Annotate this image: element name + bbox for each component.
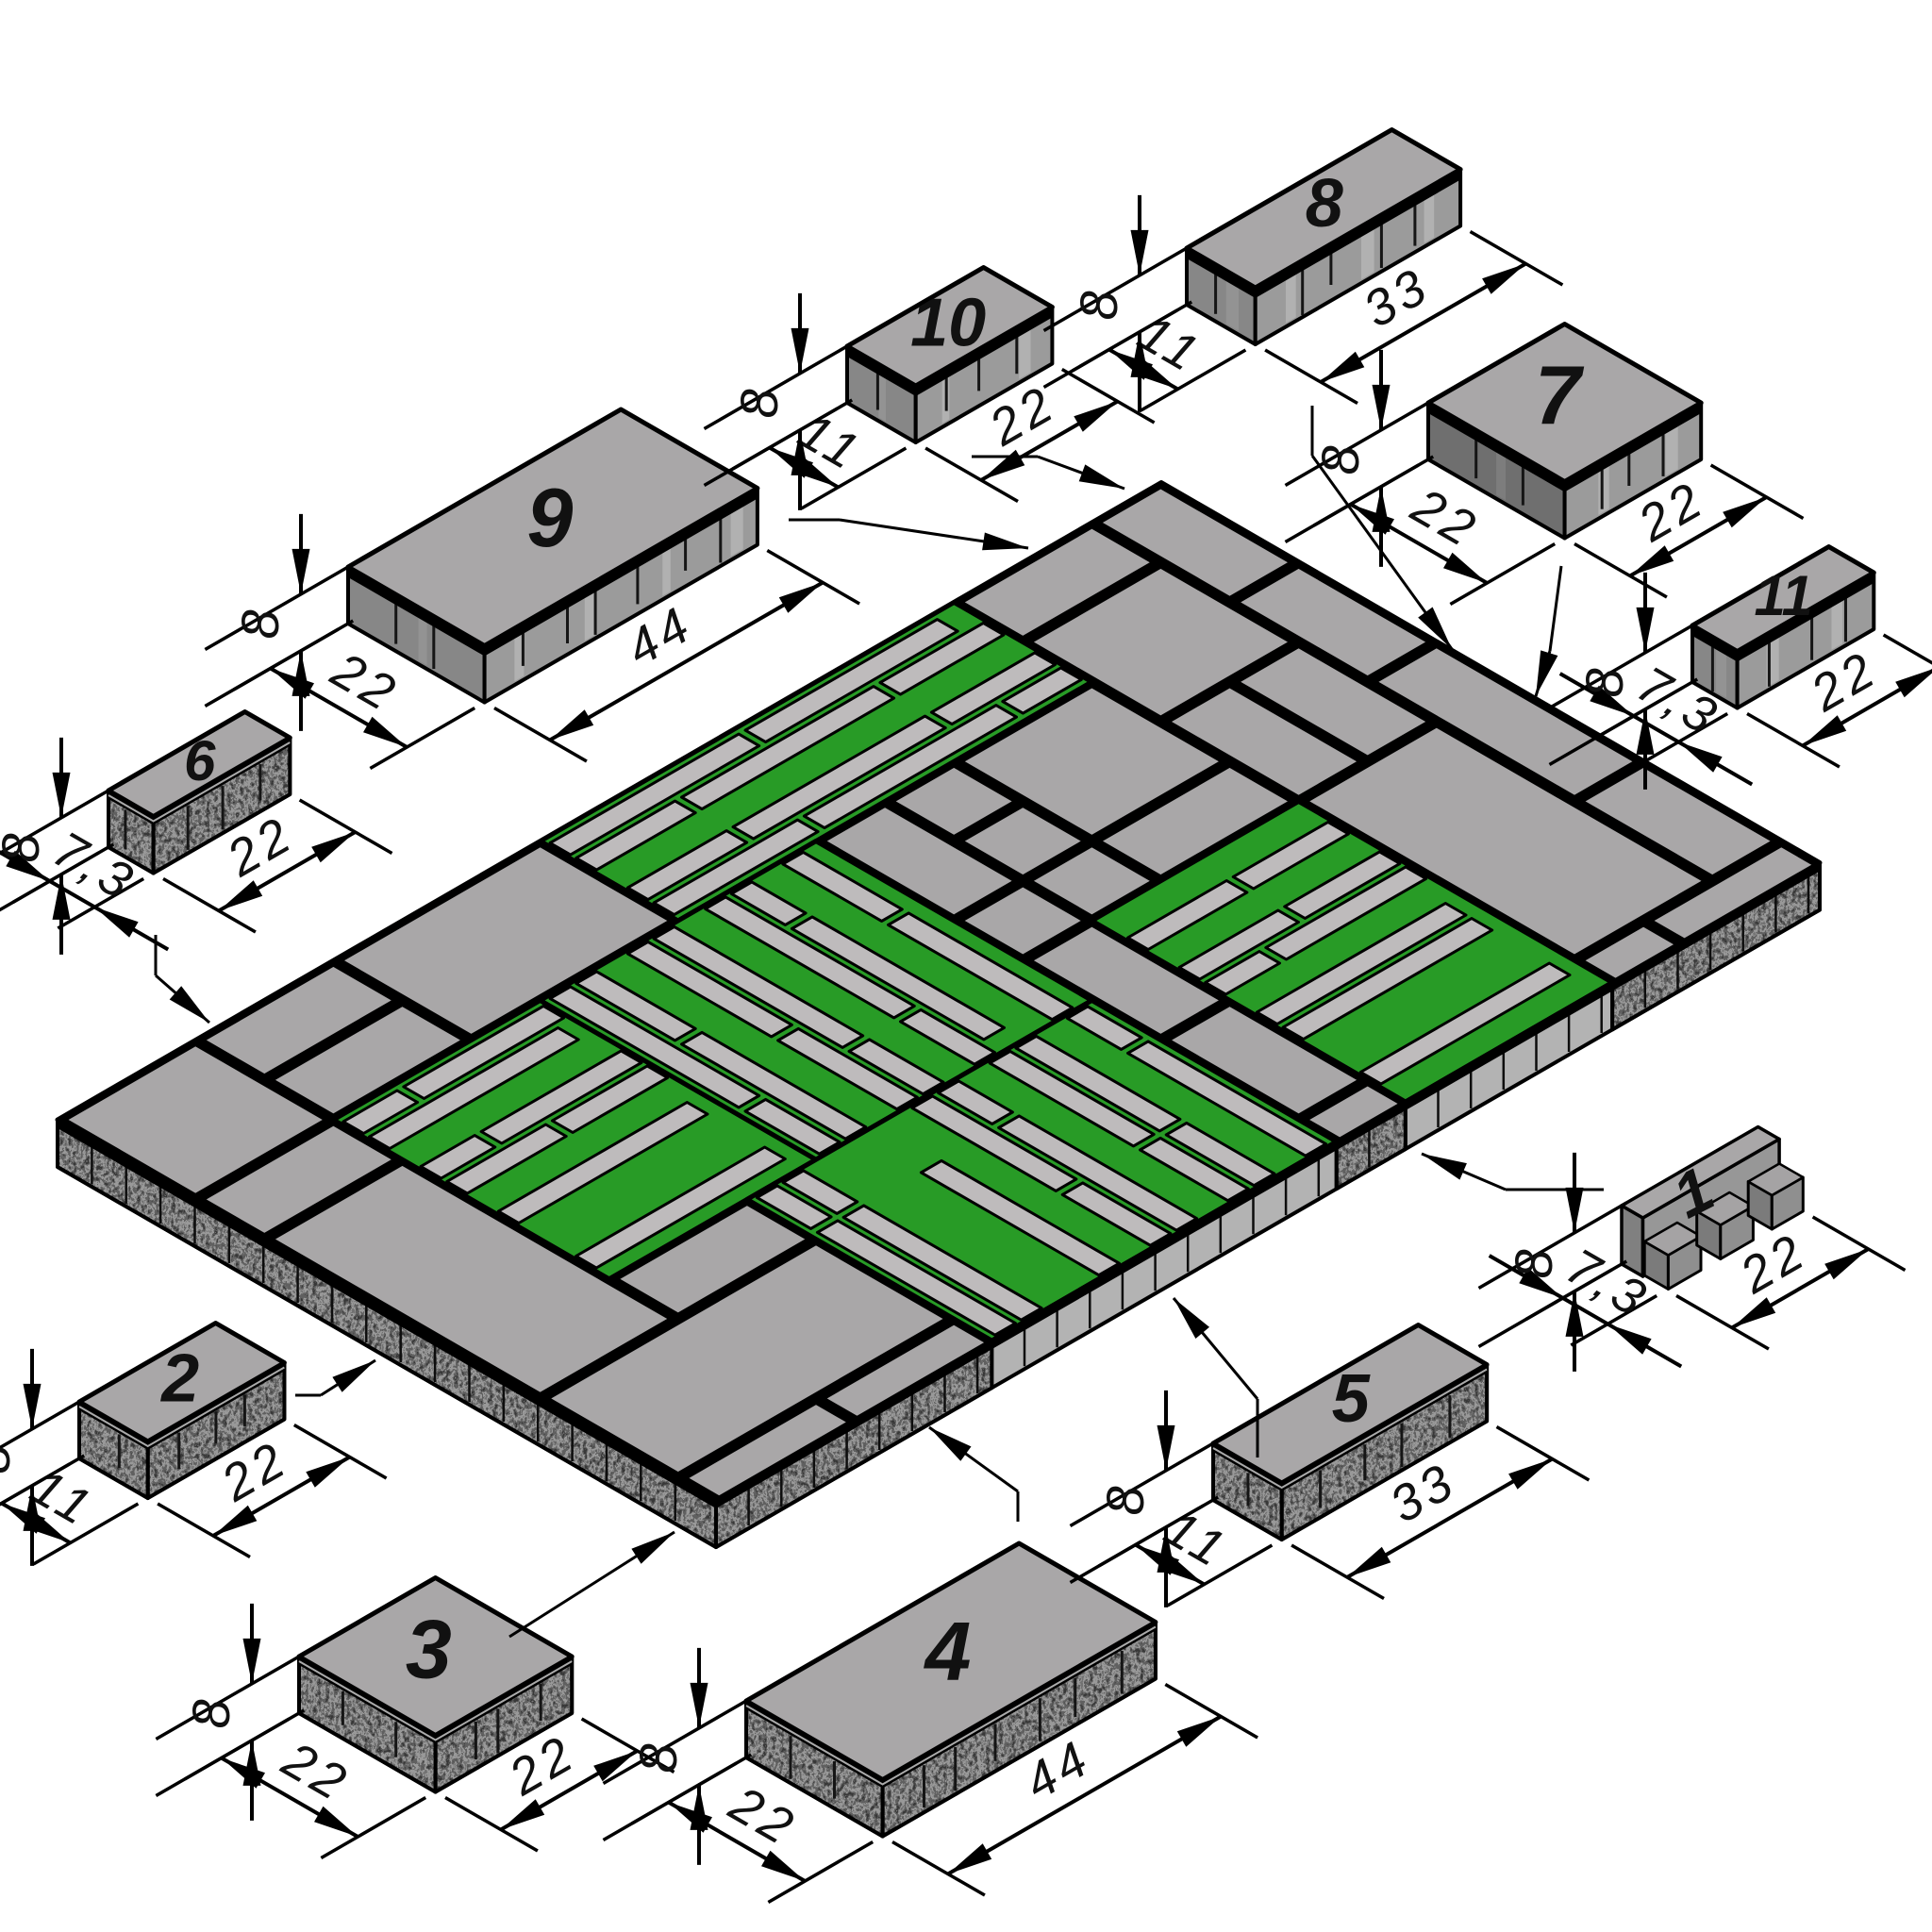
svg-text:8: 8: [1310, 445, 1370, 475]
svg-text:11: 11: [1755, 564, 1813, 627]
svg-text:8: 8: [1504, 1249, 1563, 1278]
svg-text:8: 8: [628, 1743, 688, 1773]
svg-text:9: 9: [527, 471, 574, 564]
svg-text:8: 8: [1069, 291, 1128, 320]
svg-text:8: 8: [1574, 668, 1634, 697]
svg-text:7: 7: [1535, 349, 1585, 442]
svg-text:10: 10: [910, 285, 986, 360]
svg-text:8: 8: [1306, 166, 1343, 241]
svg-text:2: 2: [159, 1341, 199, 1416]
svg-text:5: 5: [1332, 1361, 1371, 1437]
svg-text:6: 6: [184, 729, 216, 792]
svg-text:8: 8: [0, 1444, 21, 1474]
svg-text:3: 3: [406, 1603, 452, 1696]
svg-text:8: 8: [729, 389, 789, 418]
svg-text:8: 8: [1095, 1486, 1155, 1515]
svg-text:8: 8: [181, 1699, 241, 1728]
svg-text:4: 4: [924, 1605, 972, 1698]
svg-text:8: 8: [0, 833, 50, 862]
svg-text:8: 8: [230, 609, 290, 639]
